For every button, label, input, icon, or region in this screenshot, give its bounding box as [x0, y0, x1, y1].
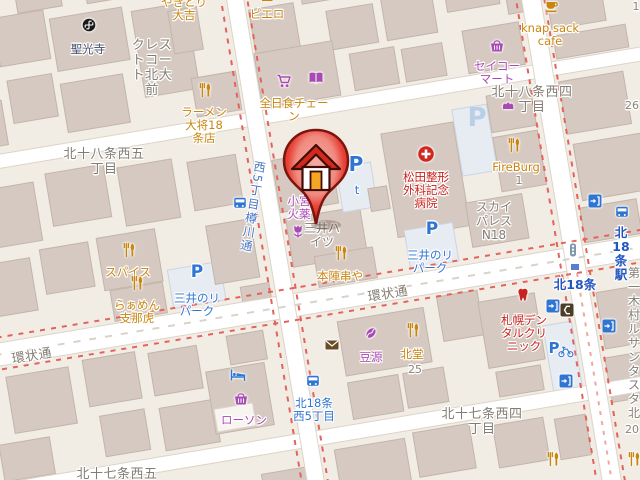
poi-label-lawson[interactable]: ローソン — [221, 414, 267, 427]
tooth-icon[interactable] — [517, 288, 531, 303]
poi-sublabel-hokudo: 25 — [408, 363, 422, 376]
bean-icon[interactable] — [364, 326, 379, 341]
fork-knife-icon[interactable] — [546, 452, 560, 467]
map-overlay-layer: やきとり 大吉ピエロknap sack cafe全日食チェー ンセイコー マート… — [0, 0, 640, 480]
poi-label-road_kanjo_west[interactable]: 環状通 — [11, 346, 53, 367]
poi-sublabel-parking_pt: t — [355, 184, 360, 197]
fork-knife-icon[interactable] — [334, 246, 348, 261]
poi-label-district_kita17_nishi5[interactable]: 北十七条西五 — [76, 467, 157, 480]
bike-icon[interactable] — [558, 346, 574, 358]
poi-label-hospital_parking[interactable]: P — [467, 112, 486, 125]
bus-icon[interactable] — [615, 205, 629, 219]
poi-label-building_name_clipped[interactable]: 第一 木村 ルサ ンタ スタ 北 — [628, 266, 640, 420]
fork-knife-icon[interactable] — [122, 243, 136, 258]
poi-sublabel-fireburg: 1 — [516, 174, 523, 187]
signal-icon[interactable] — [569, 243, 577, 258]
basket-icon[interactable] — [490, 39, 505, 53]
poi-label-district_kita17_nishi4[interactable]: 北十七条西四 丁目 — [441, 407, 522, 437]
bed-icon[interactable] — [230, 369, 246, 382]
poi-label-mamegen[interactable]: 豆源 — [360, 351, 383, 364]
fork-knife-icon[interactable] — [198, 83, 212, 98]
poi-label-sapporo_dental[interactable]: 札幌デン タルクリ ニック — [501, 314, 547, 353]
exit-icon[interactable] — [603, 320, 616, 333]
poi-label-num_20[interactable]: 20 — [625, 423, 639, 436]
fork-knife-icon[interactable] — [130, 276, 144, 291]
atm-icon[interactable] — [561, 304, 574, 317]
poi-label-bus_stop_kita18_nishi5[interactable]: 北18条 西5丁目 — [293, 397, 335, 423]
poi-label-seiko_mart[interactable]: セイコー マート — [474, 60, 520, 86]
poi-label-bicycle_parking[interactable]: P — [549, 342, 560, 355]
poi-sublabel-mitsui_repark_west: P — [191, 266, 203, 279]
basket-icon[interactable] — [234, 392, 249, 406]
poi-label-zennichishoku_chain[interactable]: 全日食チェー ン — [260, 97, 329, 123]
poi-label-yakitori_daikichi[interactable]: やきとり 大吉 — [161, 0, 207, 22]
poi-label-seikoji[interactable]: 聖光寺 — [71, 43, 106, 56]
exit-icon[interactable] — [560, 375, 573, 388]
poi-label-fireburg[interactable]: FireBurg — [492, 161, 540, 174]
map-canvas[interactable]: やきとり 大吉ピエロknap sack cafe全日食チェー ンセイコー マート… — [0, 0, 640, 480]
poi-label-knap_sack_cafe[interactable]: knap sack cafe — [521, 22, 579, 48]
poi-label-honjin_kushiya[interactable]: 本陣串や — [317, 270, 363, 283]
poi-label-district_kita18_nishi4[interactable]: 北十八条西四 丁目 — [491, 85, 572, 115]
station-entrance-marker — [571, 264, 579, 270]
poi-label-district_kita18_nishi5[interactable]: 北十八条西五 丁目 — [63, 147, 144, 177]
poi-label-crest_court[interactable]: クレス トコー ト北大 前 — [132, 38, 173, 98]
poi-label-matsuda_hospital[interactable]: 松田整形 外科記念 病院 — [403, 171, 449, 210]
cup-icon[interactable] — [545, 0, 559, 13]
poi-label-ramen_shinatora[interactable]: らぁめん 支那虎 — [114, 299, 160, 325]
temple-icon[interactable] — [82, 18, 96, 32]
house-map-pin[interactable] — [279, 128, 353, 236]
poi-label-mitsui_repark_west[interactable]: 三井のリ パーク — [174, 292, 220, 318]
poi-label-crossing_sign[interactable]: 北18条 — [554, 278, 596, 292]
poi-label-num_26[interactable]: 26 — [625, 99, 639, 112]
cup-icon[interactable] — [261, 0, 275, 2]
bus-icon[interactable] — [306, 374, 320, 388]
poi-sublabel-mitsui_repark_east: P — [426, 223, 438, 236]
fork-knife-icon[interactable] — [507, 138, 521, 153]
poi-label-ramen_taisho[interactable]: ラーメン 大将18 条店 — [181, 106, 227, 145]
poi-label-num_1[interactable]: 1 — [633, 0, 640, 13]
exit-icon[interactable] — [589, 195, 602, 208]
poi-label-road_kanjo_center[interactable]: 環状通 — [367, 284, 409, 305]
poi-label-sky_palace_n18[interactable]: スカイ パレス N18 — [476, 200, 512, 242]
red-cross-icon[interactable] — [418, 146, 435, 163]
fork-knife-icon[interactable] — [627, 452, 640, 467]
poi-label-hokudo[interactable]: 北堂 — [401, 348, 424, 361]
poi-label-pierrot[interactable]: ピエロ — [250, 8, 285, 21]
book-icon[interactable] — [308, 72, 324, 85]
exit-icon[interactable] — [547, 300, 560, 313]
poi-label-mitsui_repark_east[interactable]: 三井のリ パーク — [407, 249, 453, 275]
fork-knife-icon[interactable] — [406, 323, 420, 338]
envelope-icon[interactable] — [325, 339, 340, 351]
cart-icon[interactable] — [277, 74, 292, 88]
